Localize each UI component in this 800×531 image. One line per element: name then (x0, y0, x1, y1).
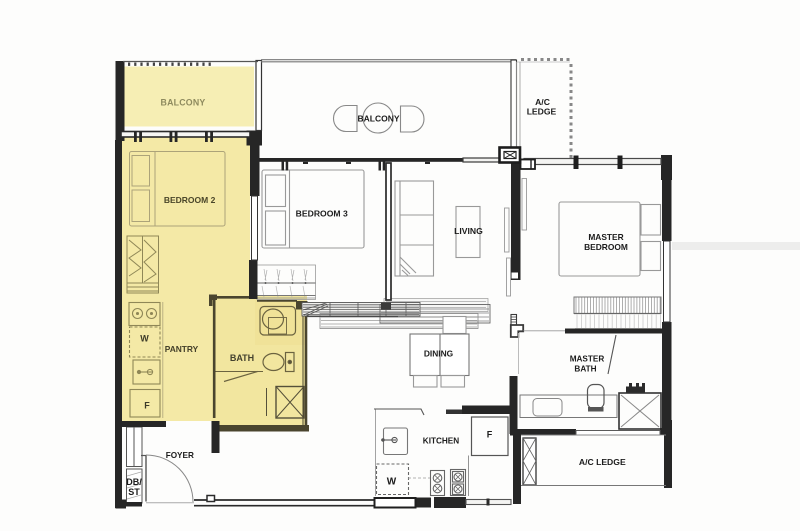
svg-text:FOYER: FOYER (166, 451, 194, 460)
svg-text:A/C: A/C (535, 97, 550, 107)
svg-text:DINING: DINING (424, 349, 453, 359)
svg-text:BATH: BATH (574, 365, 596, 374)
svg-text:F: F (487, 430, 493, 440)
svg-text:MASTER: MASTER (588, 232, 623, 242)
svg-text:BATH: BATH (230, 353, 254, 363)
svg-text:BEDROOM 2: BEDROOM 2 (164, 195, 216, 205)
svg-text:PANTRY: PANTRY (165, 344, 199, 354)
svg-text:BEDROOM: BEDROOM (584, 242, 628, 252)
svg-text:LEDGE: LEDGE (527, 107, 557, 117)
svg-text:BALCONY: BALCONY (357, 114, 399, 124)
svg-text:BALCONY: BALCONY (161, 98, 206, 108)
svg-text:A/C LEDGE: A/C LEDGE (579, 457, 626, 467)
svg-text:BEDROOM 3: BEDROOM 3 (296, 208, 348, 218)
svg-text:W: W (140, 334, 149, 344)
svg-text:KITCHEN: KITCHEN (423, 437, 459, 446)
svg-text:LIVING: LIVING (454, 226, 483, 236)
svg-text:W: W (387, 477, 397, 488)
svg-text:ST: ST (128, 487, 140, 497)
svg-text:DB/: DB/ (126, 477, 142, 487)
svg-text:F: F (144, 401, 150, 411)
svg-text:MASTER: MASTER (570, 355, 605, 364)
